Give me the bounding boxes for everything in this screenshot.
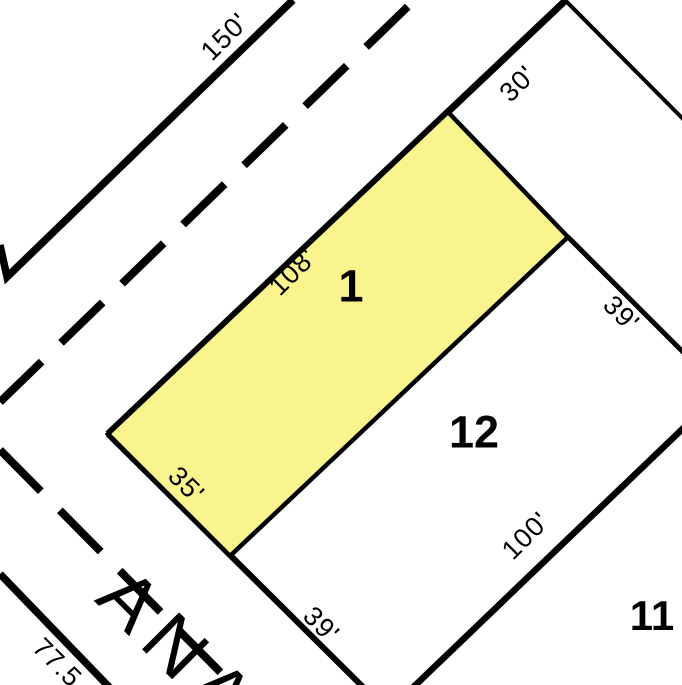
corner-parcel-rear-line: [560, 0, 682, 122]
parcel-map-canvas[interactable]: 150' 30' 108' 39' 35' 100' 39' 77.5 1 12…: [0, 0, 682, 685]
street1-far-edge-line: [0, 0, 293, 277]
parcel-lines-layer: [0, 0, 682, 685]
lot-number-1: 1: [338, 264, 363, 309]
lot-number-11: 11: [630, 595, 674, 637]
lot-number-12: 12: [449, 410, 499, 455]
